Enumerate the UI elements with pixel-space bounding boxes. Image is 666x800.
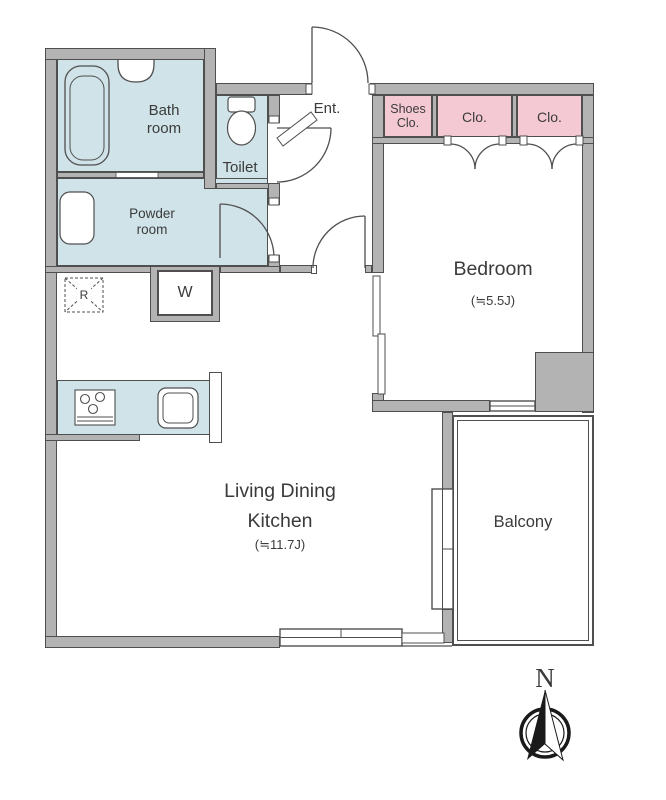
compass-icon bbox=[521, 690, 569, 760]
wall-hall-upper bbox=[268, 95, 280, 123]
hall-door-jamb bbox=[311, 265, 317, 274]
wall-pillar bbox=[535, 352, 594, 412]
room-label-closet-2: Clo. bbox=[517, 109, 582, 126]
room-label-shoes-closet: Shoes Clo. bbox=[386, 102, 430, 131]
compass-north-label: N bbox=[523, 662, 567, 695]
counter-end-panel bbox=[209, 372, 222, 443]
fixture-label-washer: W bbox=[157, 283, 213, 303]
wall-kitchen-halfwall bbox=[45, 434, 140, 441]
wall-powder-bottom-right bbox=[220, 266, 280, 273]
room-area-ldk: (≒11.7J) bbox=[205, 537, 355, 553]
wall-bedroom-top-c bbox=[577, 137, 594, 144]
compass-needle-dark bbox=[527, 690, 545, 760]
entrance-door-swing bbox=[312, 27, 368, 83]
room-label-ldk: Living Dining Kitchen bbox=[205, 476, 355, 536]
wall-bedroom-top-b bbox=[500, 137, 527, 144]
wall-top-bath bbox=[45, 48, 216, 60]
room-label-entrance: Ent. bbox=[287, 100, 367, 118]
wall-bath-powder-divider bbox=[57, 172, 204, 178]
wall-bedroom-bottom bbox=[372, 400, 490, 412]
closet-1-doors bbox=[450, 144, 500, 169]
wall-hall-bottom-jamb bbox=[365, 265, 372, 273]
room-area-bedroom: (≒5.5J) bbox=[418, 293, 568, 309]
wall-top-right bbox=[370, 83, 594, 95]
toilet-door-swing bbox=[277, 128, 331, 182]
wall-bedroom-top-a bbox=[372, 137, 450, 144]
bedroom-south-window bbox=[490, 401, 535, 411]
closet-2-doors bbox=[527, 144, 577, 169]
wall-hall-mid bbox=[268, 183, 280, 205]
kitchen-counter bbox=[57, 380, 214, 435]
room-label-powder-room: Powder room bbox=[122, 206, 182, 239]
wall-left bbox=[45, 48, 57, 648]
room-label-toilet: Toilet bbox=[202, 159, 278, 177]
room-label-balcony: Balcony bbox=[452, 512, 594, 532]
wall-bottom bbox=[45, 636, 280, 648]
wall-top-entrance bbox=[216, 83, 312, 95]
floor-plan: Bath room Toilet Powder room Ent. Shoes … bbox=[0, 0, 666, 800]
wall-bedroom-left bbox=[372, 95, 384, 273]
bedroom-sliding-partition bbox=[373, 276, 385, 394]
room-label-closet-1: Clo. bbox=[437, 109, 512, 126]
room-label-bedroom: Bedroom bbox=[418, 258, 568, 282]
ldk-south-window bbox=[280, 629, 402, 646]
compass-needle-light bbox=[545, 690, 563, 760]
fixture-label-refrigerator: R bbox=[74, 288, 94, 303]
room-label-bathroom: Bath room bbox=[140, 102, 188, 139]
balcony-sliding-door bbox=[432, 489, 453, 609]
wall-powder-bottom-left bbox=[45, 266, 152, 273]
ldk-door-swing bbox=[313, 216, 365, 268]
